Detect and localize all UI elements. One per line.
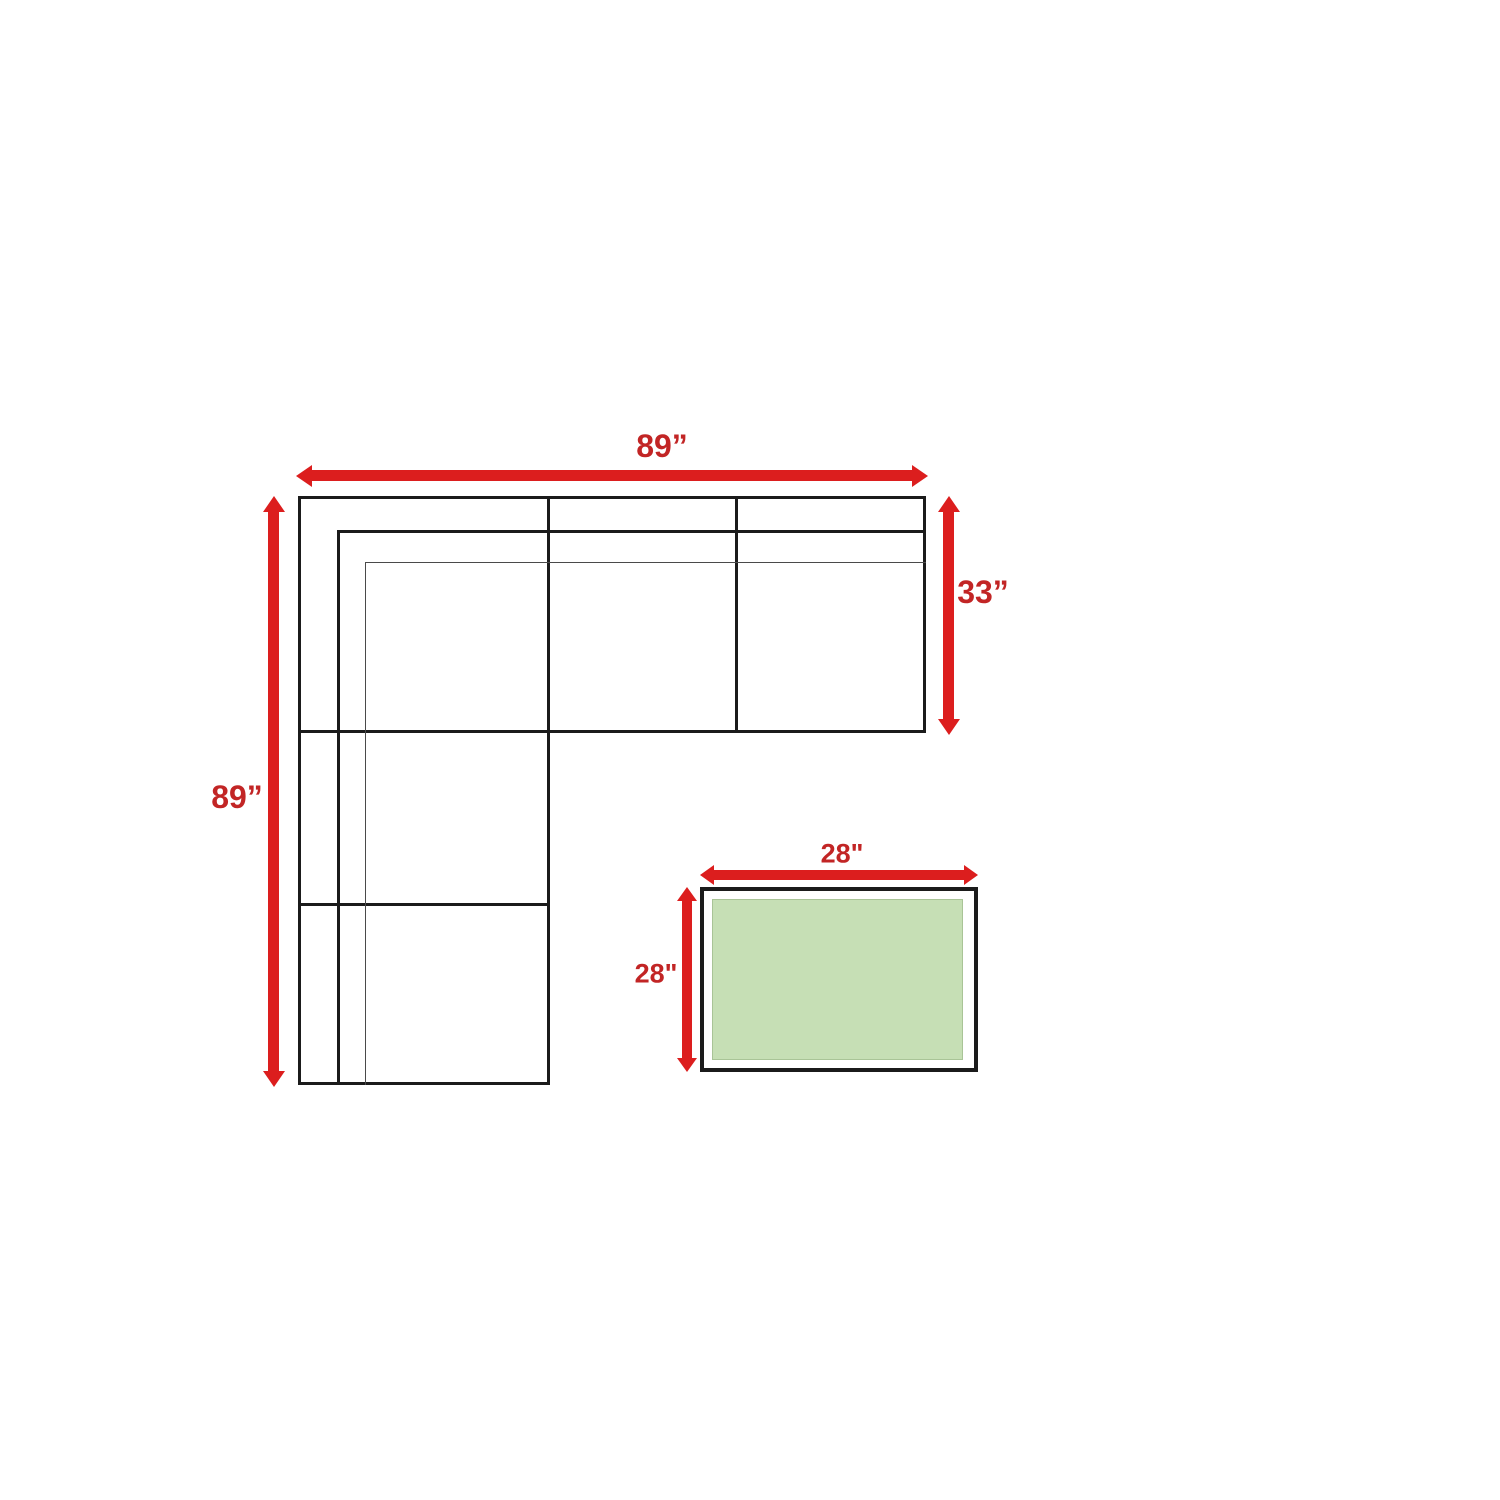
sofa-depth-label: 89” bbox=[211, 781, 263, 813]
sofa-seat-divider-horizontal-1 bbox=[298, 730, 926, 733]
sofa-section-depth-label: 33” bbox=[957, 576, 1009, 608]
sofa-seat-divider-horizontal-2 bbox=[298, 903, 550, 906]
sofa-width-arrow bbox=[312, 470, 912, 481]
coffee-table-top bbox=[712, 899, 963, 1060]
sofa-backrest-line-top bbox=[337, 530, 926, 533]
table-depth-arrow bbox=[682, 901, 692, 1058]
sofa-width-label: 89” bbox=[636, 430, 688, 462]
sofa-cushion-line-left bbox=[365, 562, 366, 1085]
sofa-seat-divider-vertical-1 bbox=[547, 496, 550, 1085]
table-depth-label: 28" bbox=[635, 961, 678, 988]
table-width-label: 28" bbox=[821, 841, 864, 868]
sofa-section-depth-arrow bbox=[943, 512, 954, 719]
sofa-depth-arrow bbox=[268, 512, 279, 1071]
sofa-cushion-line-top bbox=[365, 562, 926, 563]
sofa-left-section bbox=[298, 496, 550, 1085]
furniture-dimension-diagram: 89” 89” 33” 28" 28" bbox=[0, 0, 1500, 1500]
table-width-arrow bbox=[714, 870, 964, 880]
sofa-backrest-line-left bbox=[337, 530, 340, 1085]
